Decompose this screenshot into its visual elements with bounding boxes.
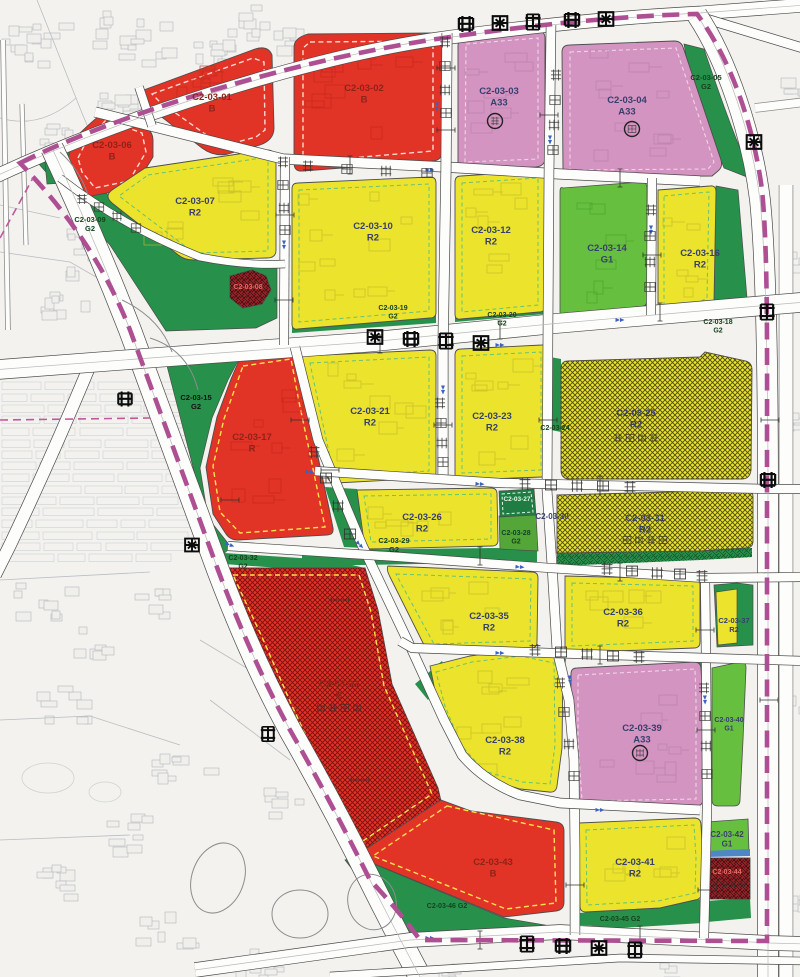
- svg-text:C2-03-44: C2-03-44: [712, 869, 741, 876]
- svg-text:C2-03-30: C2-03-30: [535, 512, 569, 521]
- svg-text:C2-03-24: C2-03-24: [540, 425, 569, 432]
- svg-text:C2-03-45 G2: C2-03-45 G2: [600, 916, 641, 923]
- svg-text:C2-03-08: C2-03-08: [233, 284, 262, 291]
- svg-text:C2-03-46 G2: C2-03-46 G2: [427, 903, 468, 910]
- svg-text:C2-03-27: C2-03-27: [503, 496, 530, 503]
